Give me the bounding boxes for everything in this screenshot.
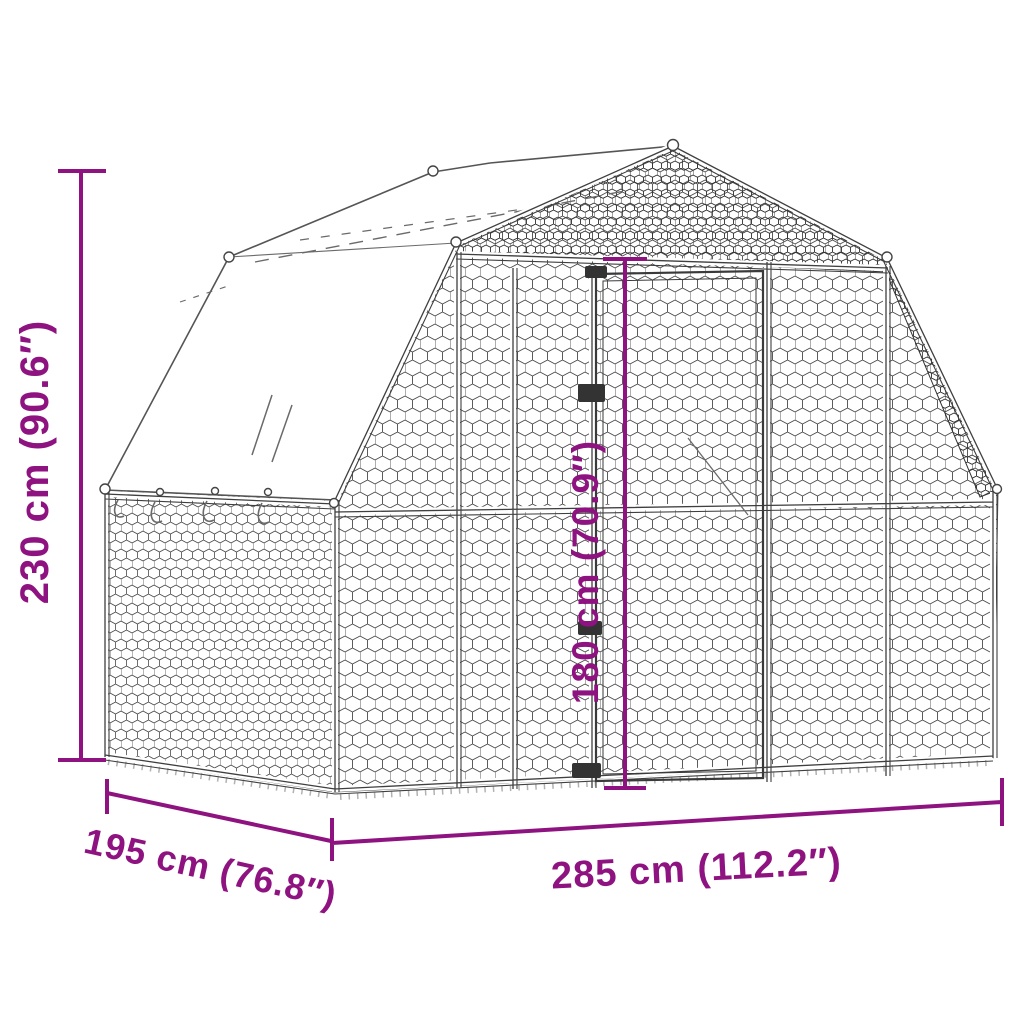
width-label: 285 cm (112.2″) <box>550 840 843 897</box>
chicken-run-drawing <box>100 140 1002 798</box>
product-dimension-diagram: 230 cm (90.6″) 180 cm (70.9″) 195 cm (76… <box>0 0 1024 1024</box>
total-height-label: 230 cm (90.6″) <box>13 320 57 604</box>
side-wall-mesh <box>105 490 335 792</box>
dimension-total-height <box>58 171 106 760</box>
product-image: 230 cm (90.6″) 180 cm (70.9″) 195 cm (76… <box>0 0 1024 1024</box>
inner-height-label: 180 cm (70.9″) <box>565 440 606 704</box>
